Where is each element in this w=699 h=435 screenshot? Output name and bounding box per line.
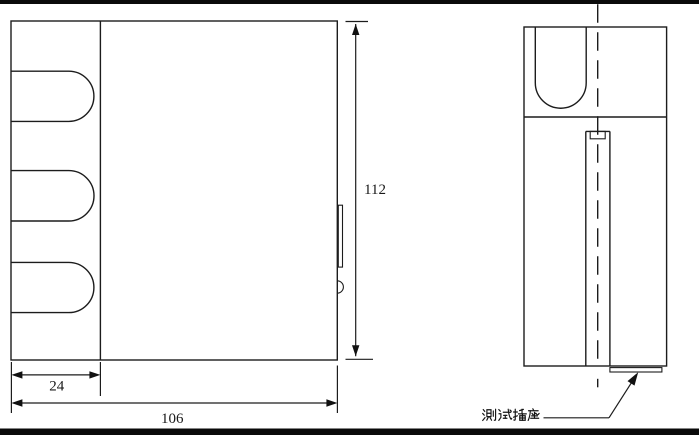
- svg-text:24: 24: [49, 378, 65, 394]
- svg-text:112: 112: [364, 182, 386, 198]
- svg-text:106: 106: [161, 411, 184, 427]
